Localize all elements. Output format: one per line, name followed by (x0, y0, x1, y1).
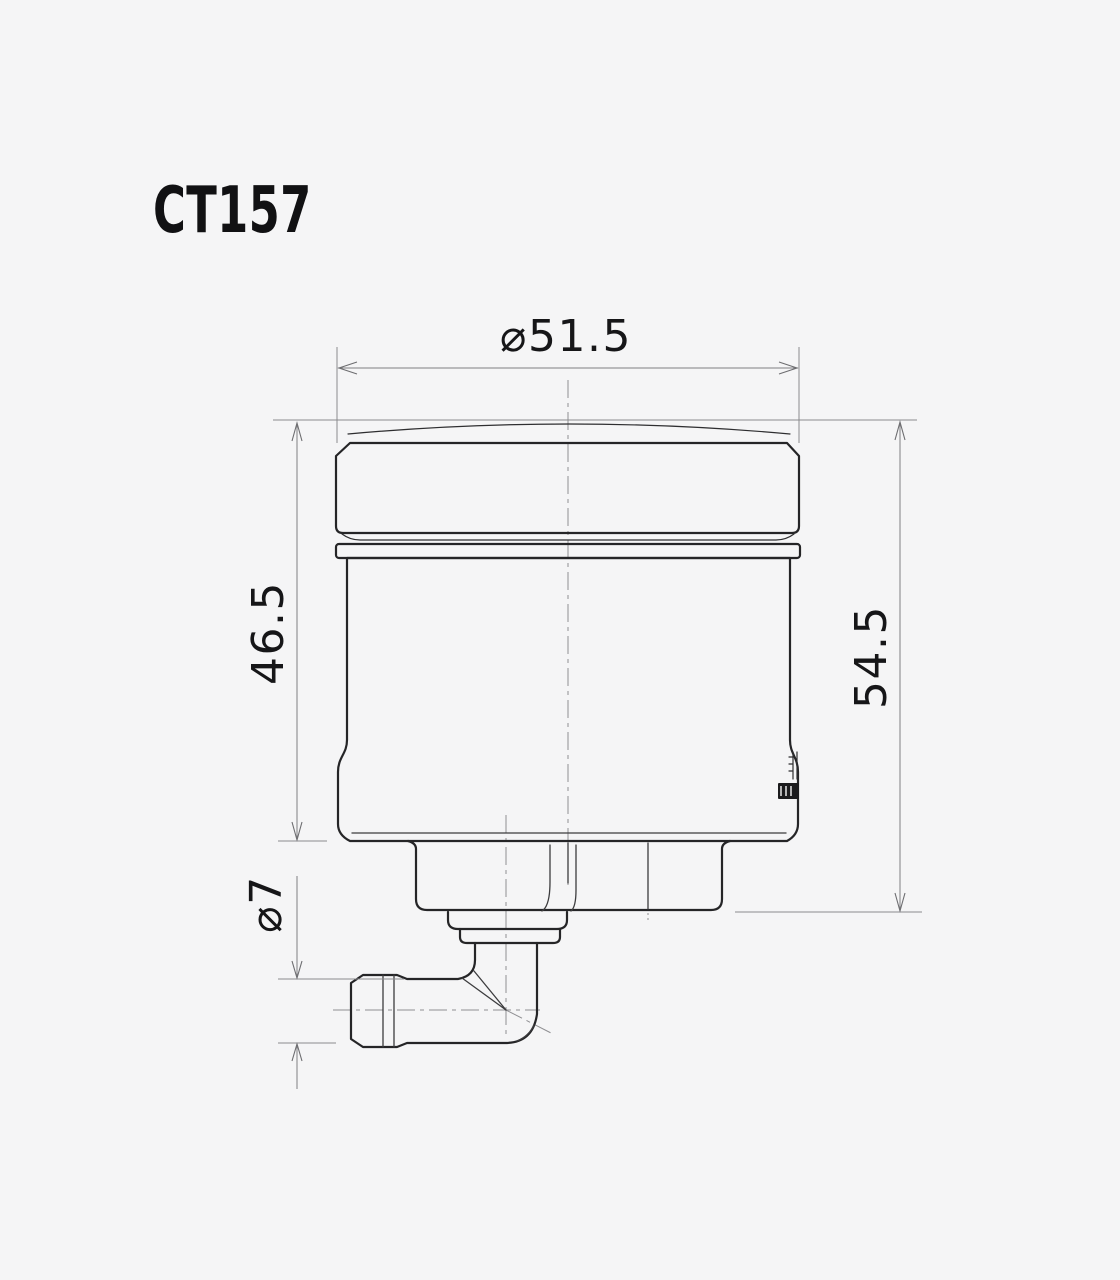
dimension-label-outlet-diameter: ⌀7 (241, 875, 292, 932)
bend-arc (517, 1025, 534, 1041)
dimension-outlet-diameter: ⌀7 (241, 875, 404, 1089)
part-title: CT157 (153, 174, 312, 248)
brand-plaque-lines (789, 752, 797, 779)
outlet-step-lower (460, 929, 560, 943)
cap-dome (348, 424, 790, 434)
outlet-elbow (351, 943, 537, 1047)
internal-channel-right (571, 845, 576, 911)
dimension-label-cap-diameter: ⌀51.5 (500, 311, 632, 362)
dimension-label-body-height: 46.5 (243, 581, 294, 685)
dimension-body-height: 46.5 (243, 423, 327, 841)
centerlines (333, 380, 648, 1034)
internal-channel-left (542, 845, 550, 911)
diagonal-centerline-bend (506, 1010, 551, 1033)
dimension-label-overall-height: 54.5 (846, 605, 897, 709)
dimension-overall-height: 54.5 (735, 422, 922, 912)
mounting-collar (408, 841, 730, 910)
drawing-canvas: ⌀51.5 46.5 54.5 ⌀7 CT157 (0, 0, 1120, 1280)
outlet-step-upper (448, 912, 567, 929)
technical-drawing: ⌀51.5 46.5 54.5 ⌀7 CT157 (0, 0, 1120, 1280)
